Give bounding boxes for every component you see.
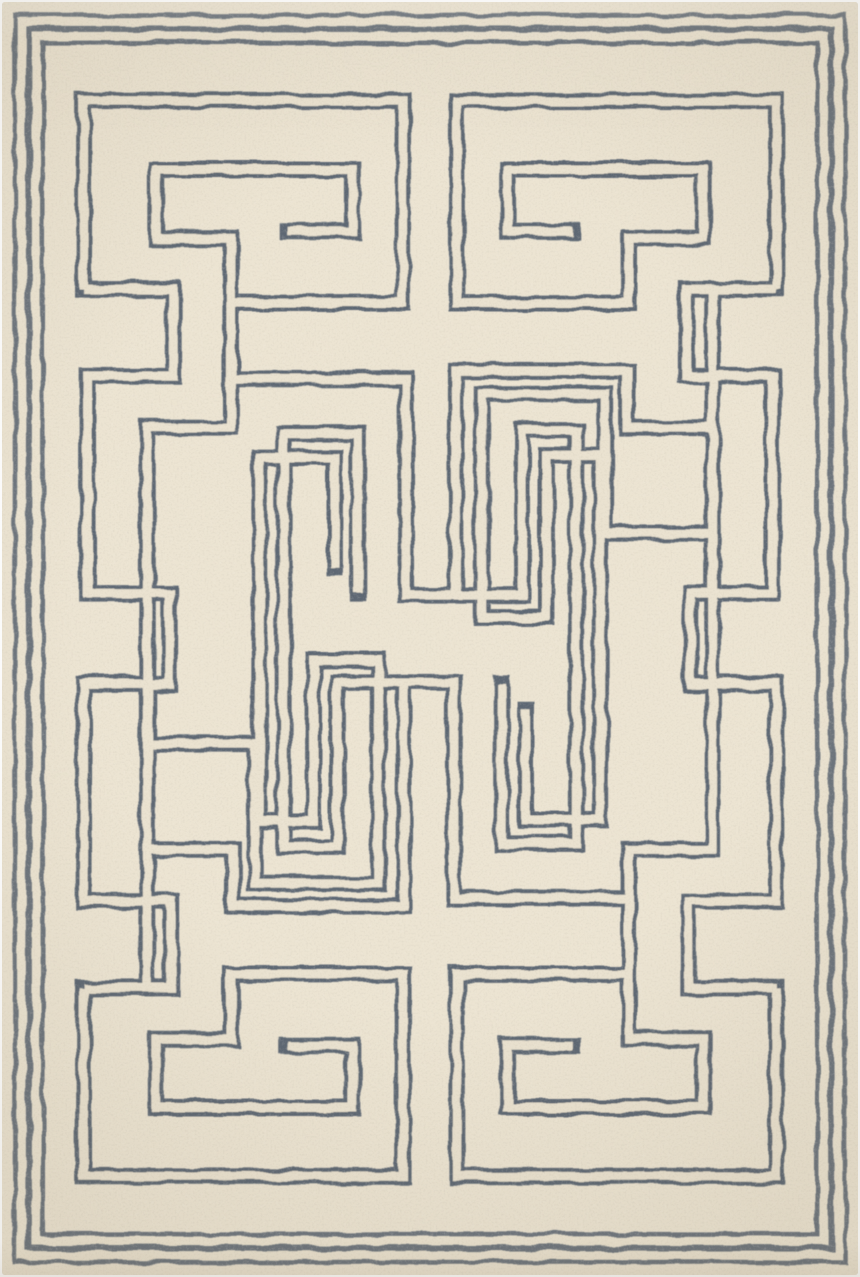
rug-pattern-svg	[2, 2, 858, 1275]
rug	[2, 2, 858, 1275]
rug-product-photo	[0, 0, 860, 1277]
